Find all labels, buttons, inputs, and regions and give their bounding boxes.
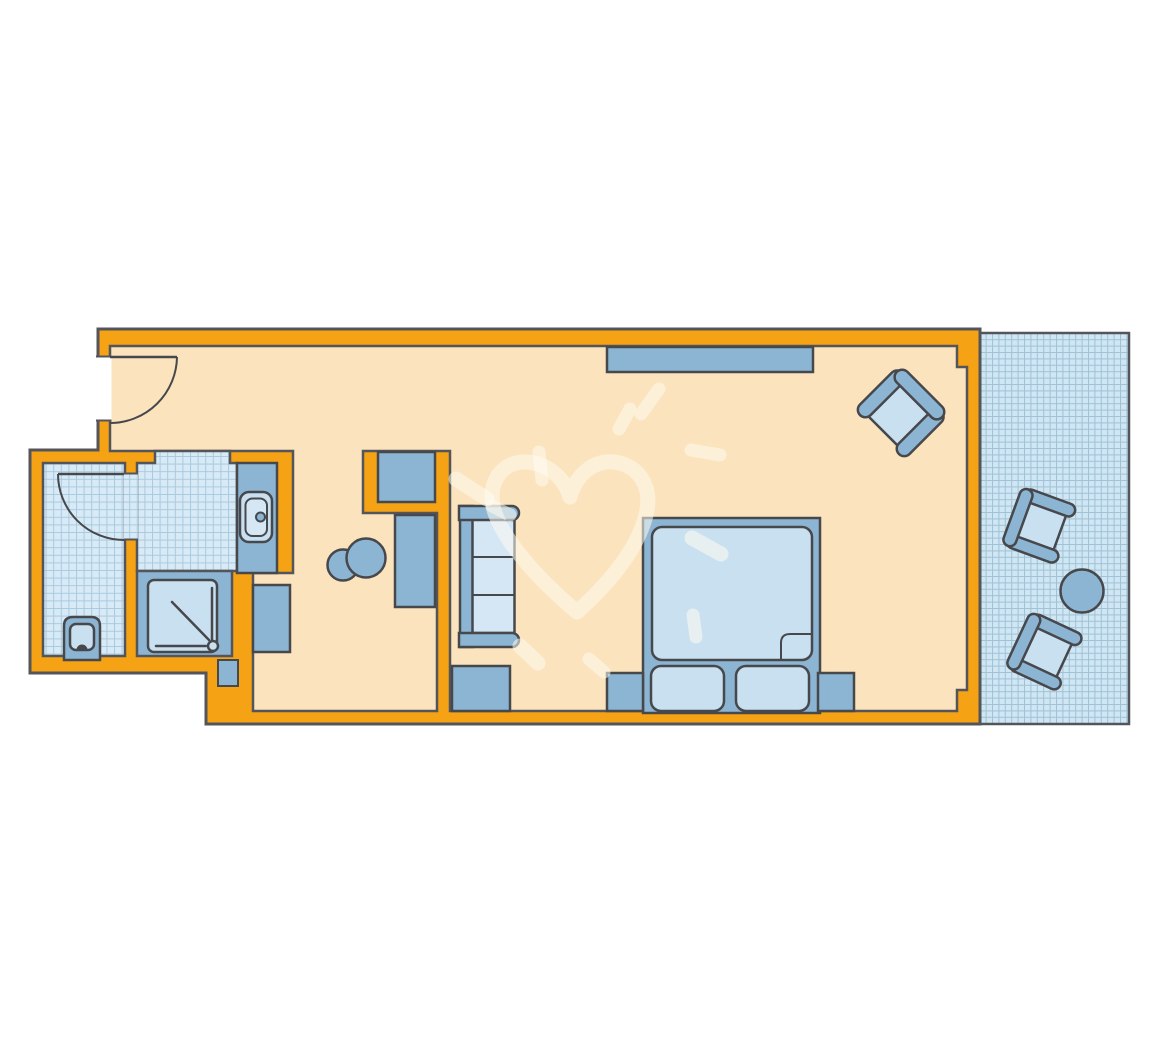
dressing-area-floor [137,451,237,571]
washbasin [240,492,272,542]
basin-drain-icon [256,513,265,522]
luggage-bench [253,585,290,652]
shower-tray [148,580,218,652]
shower-drain-icon [208,641,218,651]
wardrobe [378,452,435,502]
pillow [736,666,809,711]
floor-plan-image [0,0,1161,1057]
sofa [459,506,519,647]
nightstand [607,673,643,711]
pillow [651,666,724,711]
mattress [652,527,812,660]
side-table [452,666,510,711]
wc-doorway [124,474,138,540]
floor-plan [0,0,1161,1057]
double-bed [643,518,820,713]
nightstand [818,673,854,711]
sofa-armrest [459,633,519,647]
minibar-cabinet [395,515,435,607]
toilet [64,617,100,660]
balcony-table [1061,570,1104,613]
sideboard [607,347,813,372]
service-duct [218,660,238,686]
